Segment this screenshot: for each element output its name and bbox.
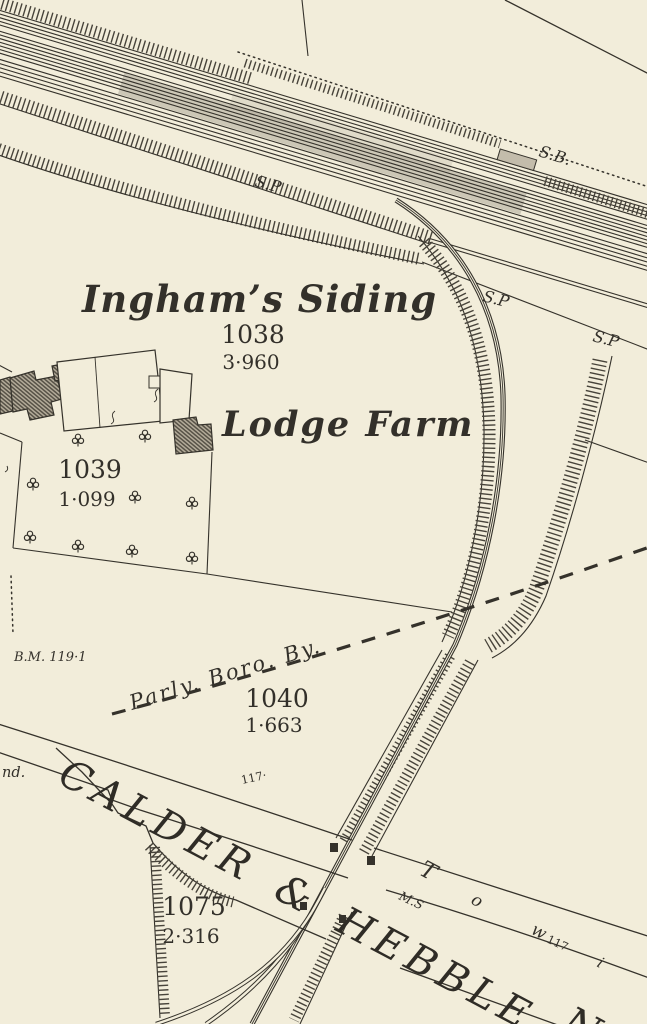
parcel-1039-acreage: 1·099 bbox=[58, 487, 115, 511]
level-label-canal: 117· bbox=[240, 768, 268, 787]
track-group-north bbox=[0, 1, 647, 227]
embankment-edge bbox=[372, 660, 478, 856]
signal-box bbox=[497, 149, 537, 170]
parcel-1040-number: 1040 bbox=[245, 684, 309, 713]
goods-line bbox=[429, 239, 647, 308]
towpath-letter-t: T bbox=[415, 856, 442, 887]
bridge-abutment bbox=[330, 843, 338, 852]
parcel-1038-number: 1038 bbox=[221, 320, 285, 349]
map-canvas: Ingham’s Siding 1038 3·960 Lodge Farm 10… bbox=[0, 0, 647, 1024]
siding-name: Ingham’s Siding bbox=[81, 277, 437, 321]
signal-post-label-1: S.P bbox=[253, 172, 283, 197]
parcel-1039-number: 1039 bbox=[58, 455, 122, 484]
os-map-sheet: Ingham’s Siding 1038 3·960 Lodge Farm 10… bbox=[0, 0, 647, 1024]
building-shaded bbox=[173, 417, 213, 454]
milestone-label: M.S bbox=[396, 888, 426, 913]
building-outline bbox=[149, 376, 161, 388]
building-outline bbox=[160, 369, 192, 423]
embankment-hatch bbox=[364, 662, 470, 852]
boundary-dotted bbox=[11, 576, 13, 634]
level-label-towpath: 117 bbox=[545, 932, 571, 954]
benchmark-label: B.M. 119·1 bbox=[13, 650, 86, 665]
parcel-1075-number: 1075 bbox=[162, 892, 226, 921]
parcel-1038-acreage: 3·960 bbox=[222, 350, 279, 374]
canal-name: CALDER & HEBBLE bbox=[51, 750, 543, 1024]
edge-word-fragment: nd. bbox=[2, 765, 25, 781]
canal-name-continuation: N bbox=[554, 998, 613, 1024]
building-outline bbox=[57, 350, 163, 431]
towpath-letter-i: i bbox=[594, 954, 607, 972]
parcel-1040-acreage: 1·663 bbox=[245, 713, 302, 737]
bridge-abutment bbox=[367, 856, 375, 865]
farm-buildings bbox=[0, 350, 213, 454]
towpath-letter-o: o bbox=[468, 890, 486, 912]
embankment-hatch bbox=[0, 0, 250, 78]
signal-post-label-3: S.P bbox=[591, 326, 621, 351]
field-boundary bbox=[585, 440, 647, 464]
field-boundary bbox=[505, 0, 647, 74]
farm-name: Lodge Farm bbox=[221, 404, 474, 445]
parcel-1075-acreage: 2·316 bbox=[162, 924, 219, 948]
field-boundary bbox=[302, 0, 308, 56]
signal-box-label: S.B. bbox=[537, 142, 573, 169]
